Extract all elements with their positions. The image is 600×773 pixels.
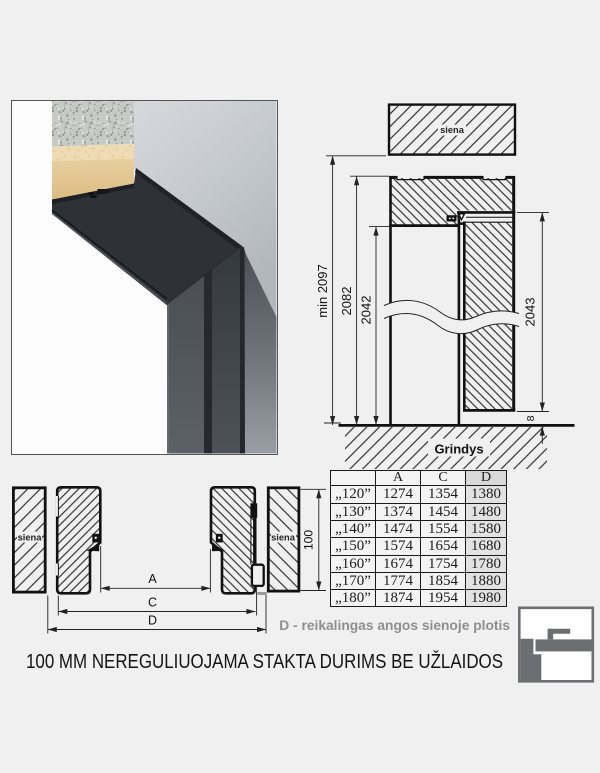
- svg-text:2042: 2042: [359, 296, 374, 325]
- svg-text:D: D: [148, 614, 157, 628]
- svg-text:siena: siena: [440, 125, 465, 135]
- svg-text:Grindys: Grindys: [434, 442, 483, 457]
- svg-text:C: C: [148, 596, 157, 610]
- svg-text:A: A: [148, 572, 157, 586]
- svg-text:8: 8: [525, 415, 537, 421]
- svg-text:siena: siena: [271, 533, 296, 543]
- svg-text:100: 100: [302, 530, 316, 550]
- svg-text:min 2097: min 2097: [315, 264, 330, 317]
- svg-text:2043: 2043: [523, 298, 538, 327]
- svg-text:2082: 2082: [339, 287, 354, 316]
- svg-text:siena: siena: [18, 533, 43, 543]
